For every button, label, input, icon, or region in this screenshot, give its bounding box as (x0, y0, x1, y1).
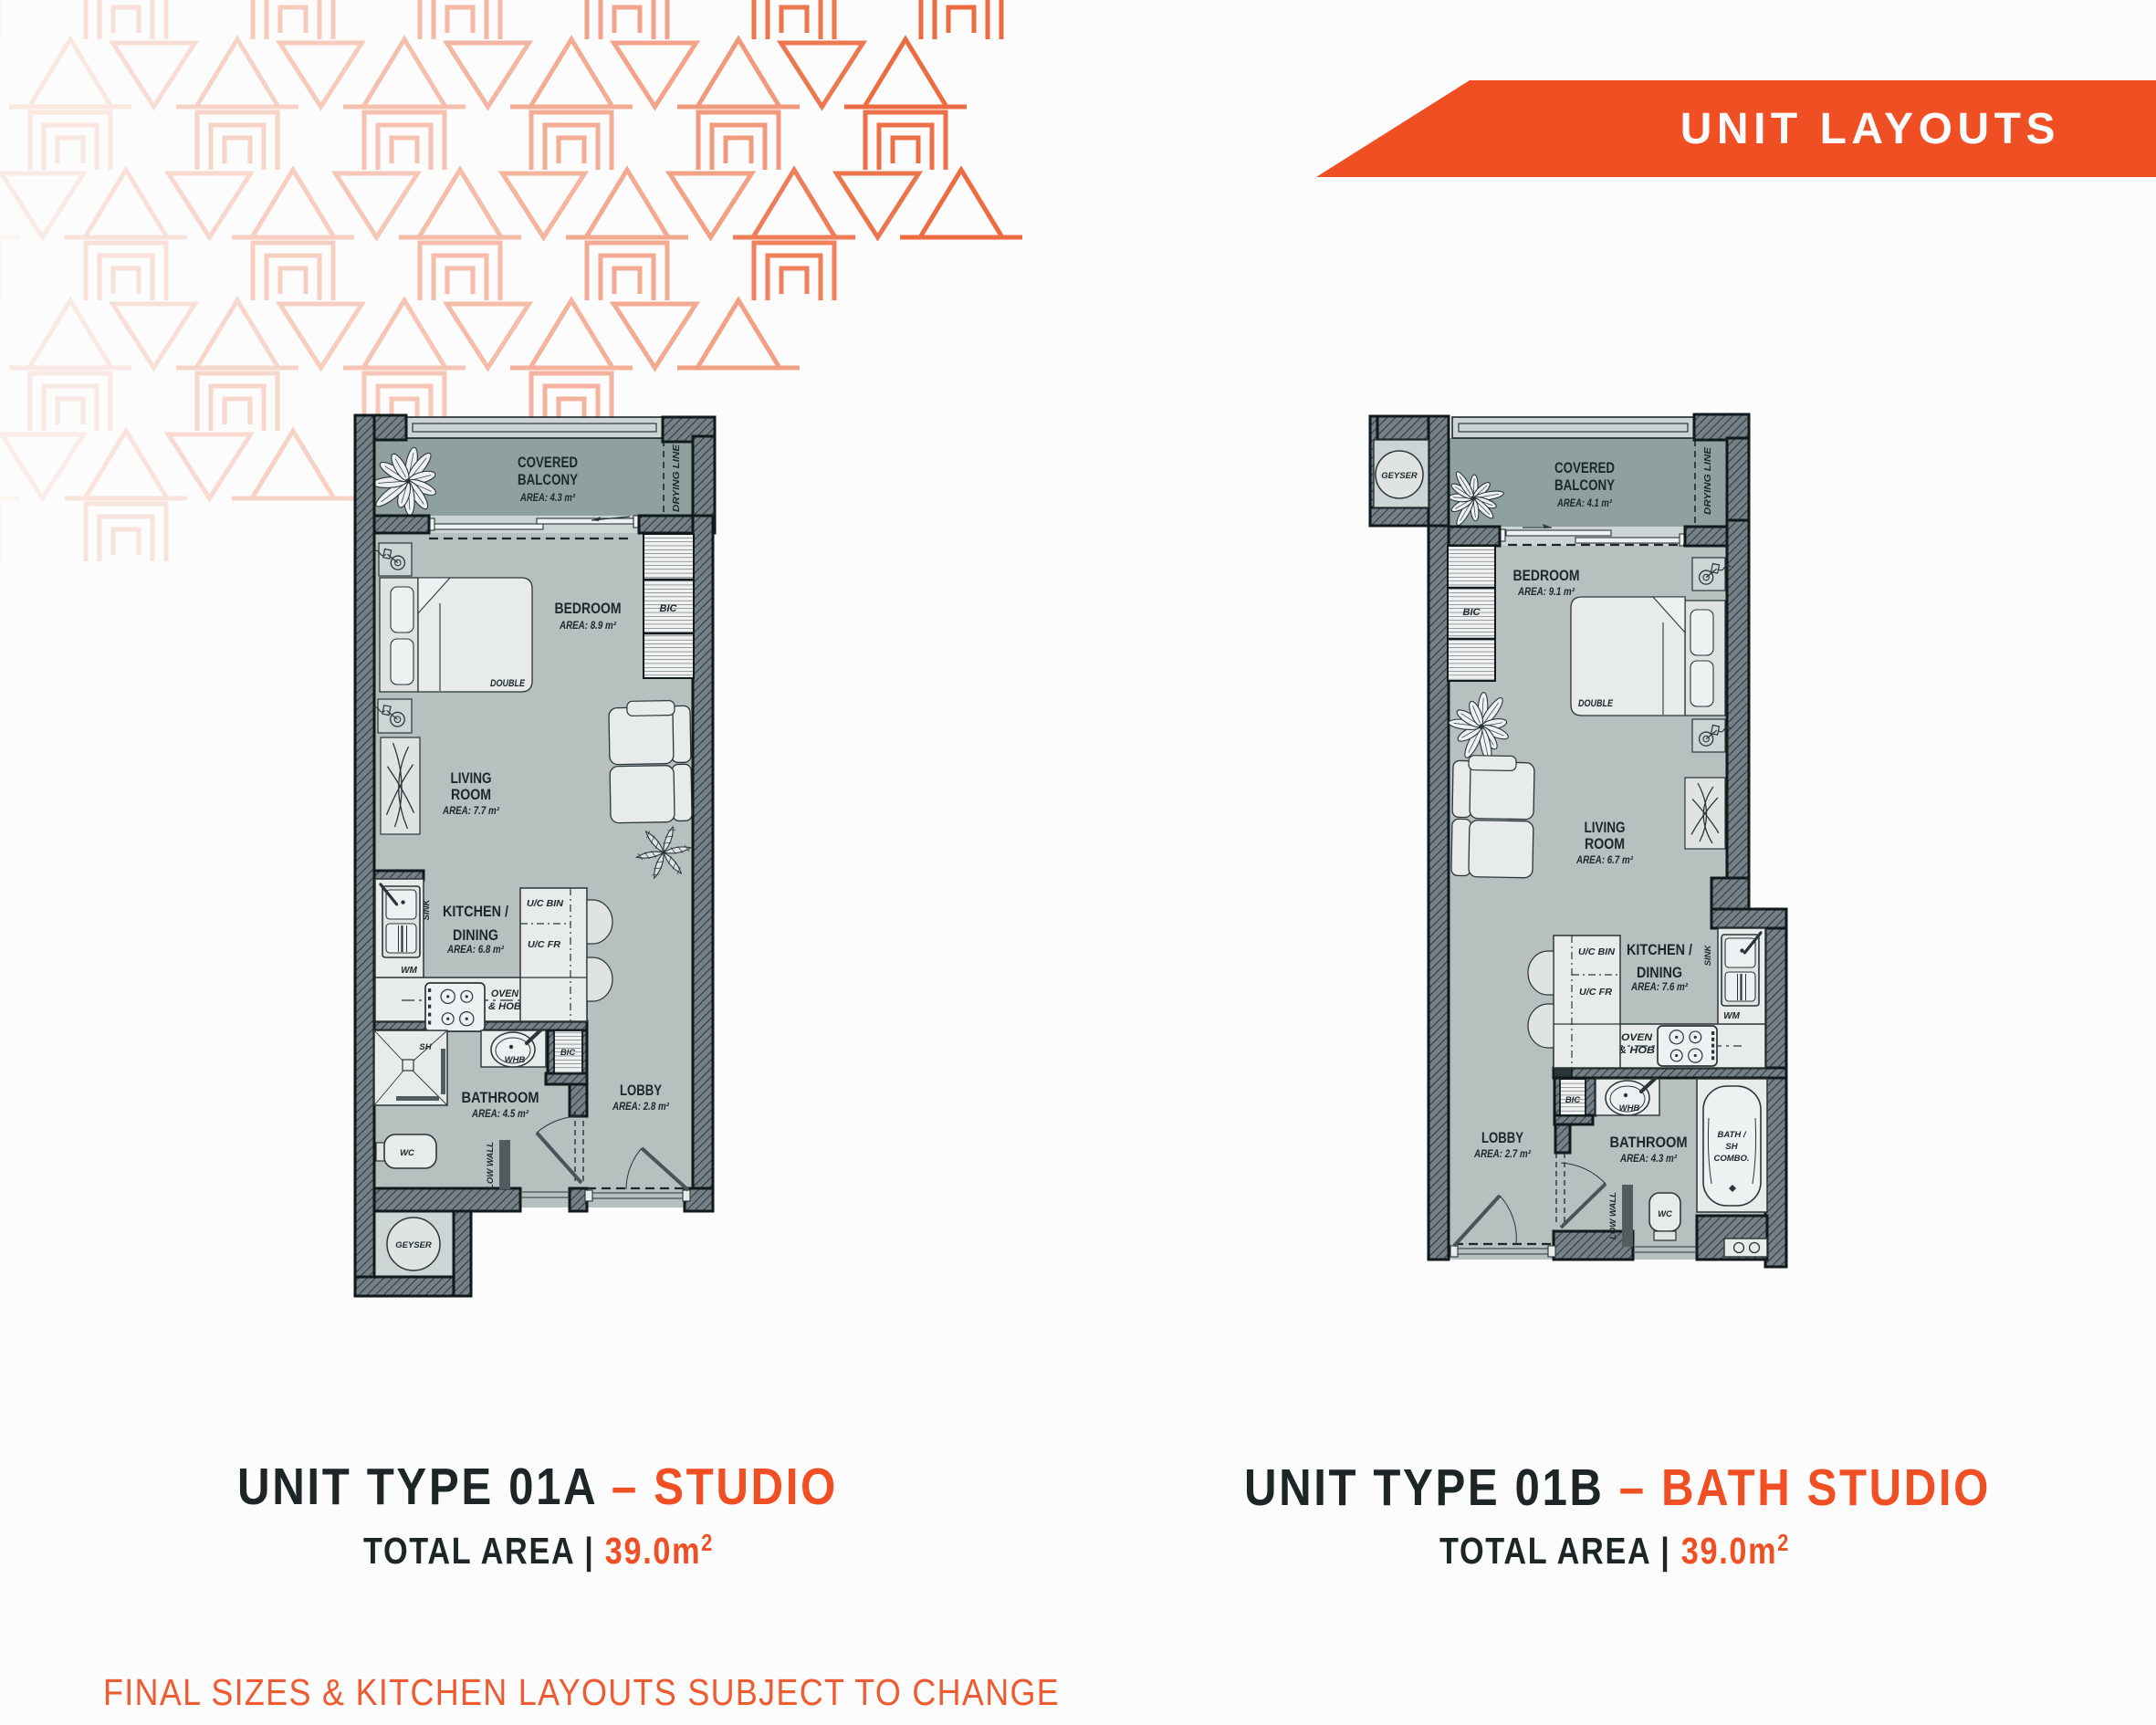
svg-text:AREA: 2.7 m²: AREA: 2.7 m² (1473, 1149, 1532, 1160)
svg-text:WM: WM (1723, 1011, 1740, 1021)
svg-text:AREA: 6.7 m²: AREA: 6.7 m² (1575, 855, 1634, 866)
svg-text:AREA: 4.3 m²: AREA: 4.3 m² (1619, 1154, 1678, 1165)
svg-text:BEDROOM: BEDROOM (555, 600, 622, 617)
svg-text:SH: SH (419, 1042, 432, 1052)
svg-text:DRYING LINE: DRYING LINE (672, 444, 682, 512)
svg-text:AREA: 4.1 m²: AREA: 4.1 m² (1556, 498, 1613, 509)
svg-text:LOBBY: LOBBY (620, 1082, 663, 1099)
svg-text:UNIT TYPE 01B – BATH STUDIO: UNIT TYPE 01B – BATH STUDIO (1244, 1458, 1991, 1517)
svg-text:GEYSER: GEYSER (1381, 471, 1418, 481)
svg-text:TOTAL AREA | 39.0m2: TOTAL AREA | 39.0m2 (363, 1529, 714, 1572)
svg-text:ROOM: ROOM (451, 786, 491, 803)
svg-text:BALCONY: BALCONY (1554, 476, 1616, 494)
svg-text:LOBBY: LOBBY (1481, 1129, 1524, 1146)
svg-text:WHB: WHB (505, 1055, 526, 1065)
svg-text:BATHROOM: BATHROOM (462, 1089, 539, 1106)
svg-text:COVERED: COVERED (1554, 459, 1615, 476)
svg-text:LIVING: LIVING (451, 769, 492, 787)
svg-text:DINING: DINING (1637, 964, 1682, 981)
svg-text:U/C FR: U/C FR (1579, 987, 1612, 998)
svg-text:GEYSER: GEYSER (395, 1240, 432, 1250)
svg-text:WC: WC (1658, 1209, 1672, 1219)
svg-text:AREA: 2.8 m²: AREA: 2.8 m² (612, 1102, 670, 1113)
svg-text:BEDROOM: BEDROOM (1513, 567, 1580, 584)
svg-text:U/C FR: U/C FR (528, 939, 560, 950)
svg-text:BIC: BIC (1463, 607, 1481, 618)
svg-text:U/C BIN: U/C BIN (1578, 946, 1615, 957)
svg-text:AREA: 4.5 m²: AREA: 4.5 m² (471, 1109, 529, 1120)
svg-text:OVEN: OVEN (1621, 1032, 1653, 1043)
svg-text:DOUBLE: DOUBLE (1578, 698, 1614, 709)
svg-text:& HOB: & HOB (488, 1001, 521, 1012)
svg-text:TOTAL AREA | 39.0m2: TOTAL AREA | 39.0m2 (1439, 1529, 1790, 1572)
svg-text:COMBO.: COMBO. (1713, 1154, 1749, 1164)
svg-text:AREA: 7.6 m²: AREA: 7.6 m² (1630, 982, 1689, 993)
svg-text:AREA: 8.9 m²: AREA: 8.9 m² (559, 621, 617, 632)
svg-text:LOW WALL: LOW WALL (486, 1142, 495, 1189)
svg-text:BATH /: BATH / (1718, 1130, 1747, 1140)
svg-text:AREA: 7.7 m²: AREA: 7.7 m² (442, 806, 500, 817)
svg-text:AREA: 4.3 m²: AREA: 4.3 m² (519, 493, 576, 504)
svg-text:& HOB: & HOB (1618, 1045, 1655, 1056)
svg-text:KITCHEN /: KITCHEN / (443, 903, 508, 920)
svg-text:BIC: BIC (1565, 1095, 1581, 1105)
svg-text:SINK: SINK (422, 899, 432, 921)
svg-text:AREA: 6.8 m²: AREA: 6.8 m² (446, 945, 505, 956)
svg-text:SINK: SINK (1703, 945, 1713, 967)
svg-text:DOUBLE: DOUBLE (490, 678, 526, 689)
svg-text:LOW WALL: LOW WALL (1608, 1192, 1617, 1239)
svg-text:ROOM: ROOM (1585, 835, 1625, 852)
svg-text:BALCONY: BALCONY (518, 471, 579, 488)
svg-text:SH: SH (1725, 1142, 1738, 1152)
svg-text:COVERED: COVERED (518, 454, 578, 471)
svg-text:DRYING LINE: DRYING LINE (1703, 447, 1713, 515)
svg-text:BATHROOM: BATHROOM (1610, 1134, 1688, 1151)
svg-text:WC: WC (400, 1148, 414, 1158)
svg-text:UNIT TYPE 01A – STUDIO: UNIT TYPE 01A – STUDIO (237, 1458, 838, 1516)
svg-text:U/C BIN: U/C BIN (527, 898, 563, 909)
svg-text:LIVING: LIVING (1585, 819, 1626, 836)
svg-text:OVEN: OVEN (491, 988, 519, 999)
svg-text:KITCHEN /: KITCHEN / (1627, 941, 1692, 958)
svg-text:UNIT LAYOUTS: UNIT LAYOUTS (1680, 105, 2060, 153)
svg-text:BIC: BIC (660, 603, 678, 614)
svg-text:AREA: 9.1 m²: AREA: 9.1 m² (1517, 587, 1575, 598)
svg-text:WHB: WHB (1619, 1103, 1640, 1113)
svg-text:WM: WM (401, 966, 417, 976)
svg-text:FINAL SIZES & KITCHEN LAYOUTS: FINAL SIZES & KITCHEN LAYOUTS SUBJECT TO… (103, 1671, 1060, 1713)
svg-text:DINING: DINING (453, 926, 498, 944)
svg-text:BIC: BIC (560, 1048, 576, 1058)
